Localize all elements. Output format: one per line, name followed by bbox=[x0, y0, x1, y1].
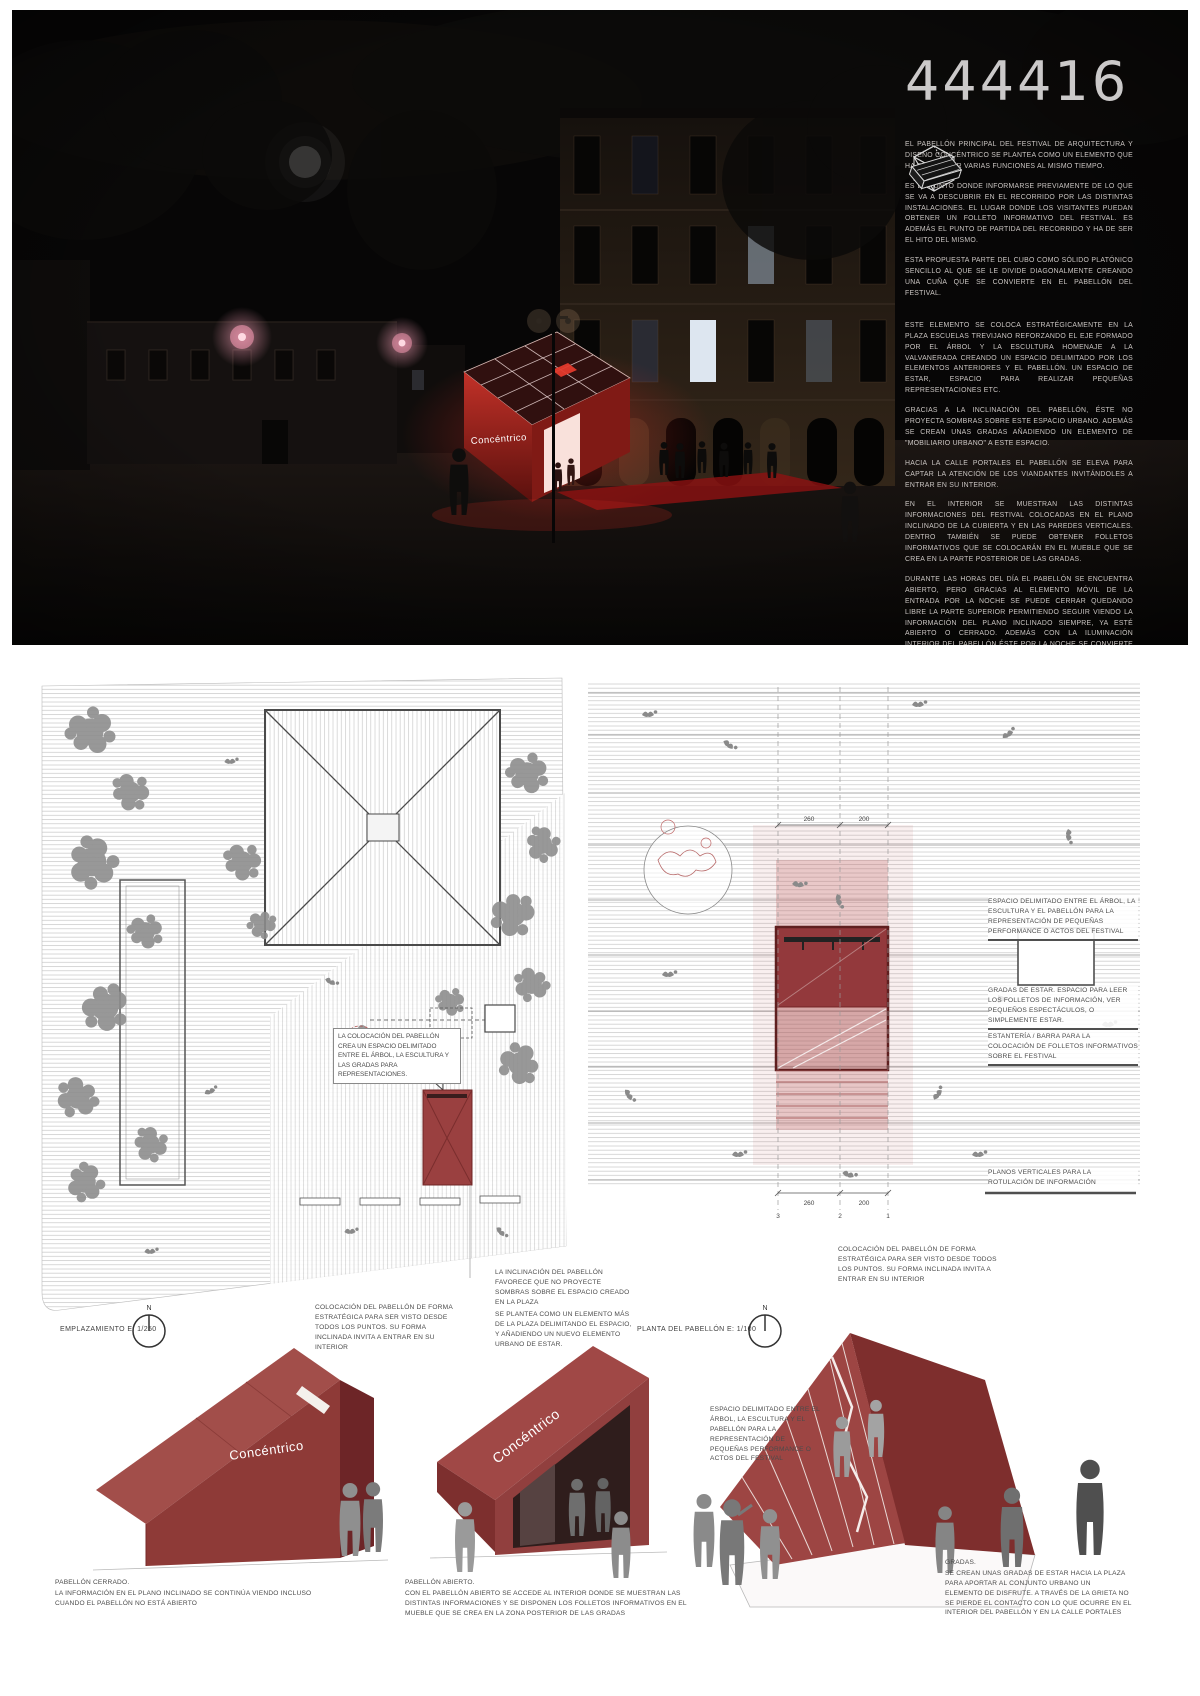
site-plan: LA COLOCACIÓN DEL PABELLÓN CREA UN ESPAC… bbox=[30, 672, 575, 1322]
floorplan-annotation: GRADAS DE ESTAR. ESPACIO PARA LEER LOS F… bbox=[988, 986, 1138, 1030]
memoria-paragraph: ESTE ELEMENTO SE COLOCA ESTRATÉGICAMENTE… bbox=[905, 321, 1133, 397]
axo-gradas-caption: GRADAS. SE CREAN UNAS GRADAS DE ESTAR HA… bbox=[945, 1558, 1150, 1618]
floorplan-annotation: PLANOS VERTICALES PARA LA ROTULACIÓN DE … bbox=[988, 1168, 1138, 1188]
svg-text:1: 1 bbox=[886, 1213, 890, 1220]
floor-plan: 260 200 260 200 3 2 1 bbox=[588, 675, 1140, 1225]
svg-text:200: 200 bbox=[859, 1200, 870, 1207]
svg-text:260: 260 bbox=[804, 816, 815, 823]
memoria-paragraph: ESTA PROPUESTA PARTE DEL CUBO COMO SÓLID… bbox=[905, 256, 1133, 300]
siteplan-sculpture bbox=[485, 1005, 515, 1032]
memoria-paragraph: EN EL INTERIOR SE MUESTRAN LAS DISTINTAS… bbox=[905, 500, 1133, 565]
svg-text:3: 3 bbox=[776, 1213, 780, 1220]
memoria-text-column: EL PABELLÓN PRINCIPAL DEL FESTIVAL DE AR… bbox=[905, 140, 1133, 645]
memoria-paragraph: DURANTE LAS HORAS DEL DÍA EL PABELLÓN SE… bbox=[905, 575, 1133, 645]
floorplan-gradas bbox=[776, 1070, 888, 1130]
person-figure bbox=[1076, 1460, 1103, 1555]
axo-open: Concéntrico bbox=[425, 1340, 675, 1580]
siteplan-note: LA COLOCACIÓN DEL PABELLÓN CREA UN ESPAC… bbox=[333, 1028, 461, 1084]
siteplan-caption-right-1: LA INCLINACIÓN DEL PABELLÓN FAVORECE QUE… bbox=[495, 1268, 637, 1308]
floor-plan-drawing: 260 200 260 200 3 2 1 bbox=[588, 675, 1140, 1225]
siteplan-pavilion bbox=[423, 1090, 472, 1185]
axo-gradas-note: ESPACIO DELIMITADO ENTRE EL ÁRBOL, LA ES… bbox=[710, 1405, 822, 1464]
svg-text:260: 260 bbox=[804, 1200, 815, 1207]
axo-closed-caption: PABELLÓN CERRADO. LA INFORMACIÓN EN EL P… bbox=[55, 1578, 385, 1609]
siteplan-main-building bbox=[265, 710, 500, 945]
floorplan-pavilion bbox=[776, 927, 888, 1070]
floorplan-performance-space bbox=[776, 860, 888, 927]
competition-board: Concéntrico bbox=[0, 0, 1200, 1696]
floorplan-annotation: ESTANTERÍA / BARRA PARA LA COLOCACIÓN DE… bbox=[988, 1032, 1138, 1066]
svg-text:N: N bbox=[146, 1305, 151, 1312]
svg-text:N: N bbox=[762, 1305, 767, 1312]
axo-open-caption: PABELLÓN ABIERTO. CON EL PABELLÓN ABIERT… bbox=[405, 1578, 715, 1619]
wedge-extracted-icon bbox=[905, 140, 967, 194]
svg-text:200: 200 bbox=[859, 816, 870, 823]
memoria-paragraph: HACIA LA CALLE PORTALES EL PABELLÓN SE E… bbox=[905, 459, 1133, 492]
person-figure bbox=[694, 1494, 715, 1567]
axo-closed: Concéntrico bbox=[88, 1338, 398, 1583]
site-plan-drawing bbox=[30, 672, 575, 1322]
board-number: 444416 bbox=[905, 50, 1165, 113]
night-render: Concéntrico bbox=[12, 10, 1188, 645]
svg-text:2: 2 bbox=[838, 1213, 842, 1220]
floorplan-annotation: ESPACIO DELIMITADO ENTRE EL ÁRBOL, LA ES… bbox=[988, 897, 1138, 941]
memoria-paragraph: GRACIAS A LA INCLINACIÓN DEL PABELLÓN, É… bbox=[905, 406, 1133, 450]
floorplan-caption: COLOCACIÓN DEL PABELLÓN DE FORMA ESTRATÉ… bbox=[838, 1245, 1006, 1285]
